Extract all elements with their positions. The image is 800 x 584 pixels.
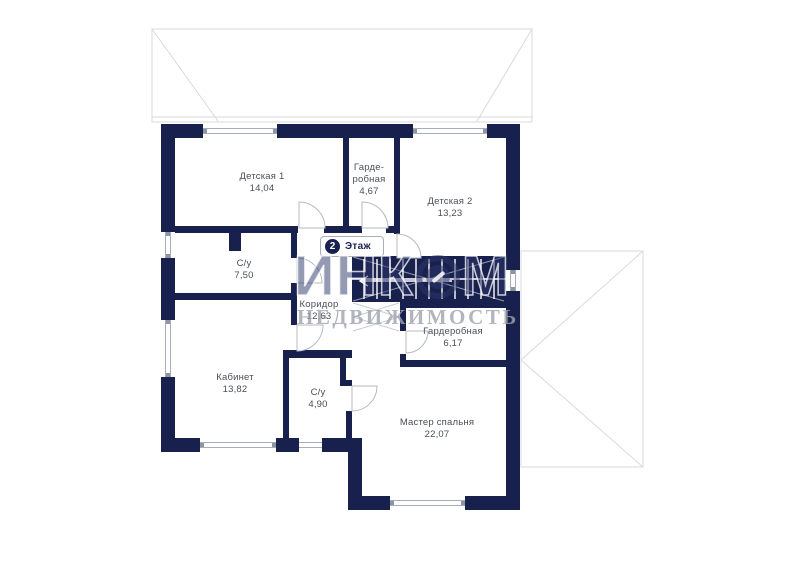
window-left-upper bbox=[166, 232, 171, 258]
floor-badge: 2 Этаж bbox=[320, 236, 384, 257]
window-master-bottom bbox=[390, 501, 465, 506]
door-detskaya1 bbox=[299, 202, 325, 228]
door-garderob-master bbox=[406, 331, 428, 353]
exterior-walls bbox=[161, 124, 520, 510]
door-su-upper bbox=[297, 258, 322, 283]
floor-label: Этаж bbox=[345, 241, 371, 252]
roof-right bbox=[521, 251, 643, 467]
window-bottom-cabinet bbox=[200, 443, 276, 448]
staircase bbox=[352, 256, 506, 302]
window-left-lower bbox=[166, 320, 171, 377]
stair-void-hatch bbox=[353, 303, 399, 331]
floor-plan: Детская 1 14,04 Гарде- робная 4,67 Детск… bbox=[0, 0, 800, 584]
floor-plan-drawing bbox=[0, 0, 800, 584]
window-top-right bbox=[413, 129, 487, 134]
roof-top bbox=[152, 29, 532, 122]
window-right-stairs bbox=[511, 270, 516, 291]
floor-number: 2 bbox=[325, 239, 340, 254]
door-garderob-small bbox=[362, 202, 388, 228]
window-top-left bbox=[203, 129, 277, 134]
door-su-lower bbox=[352, 386, 377, 411]
window-bottom-small bbox=[299, 443, 322, 448]
door-detskaya2 bbox=[397, 234, 421, 258]
door-kabinet bbox=[297, 325, 323, 351]
